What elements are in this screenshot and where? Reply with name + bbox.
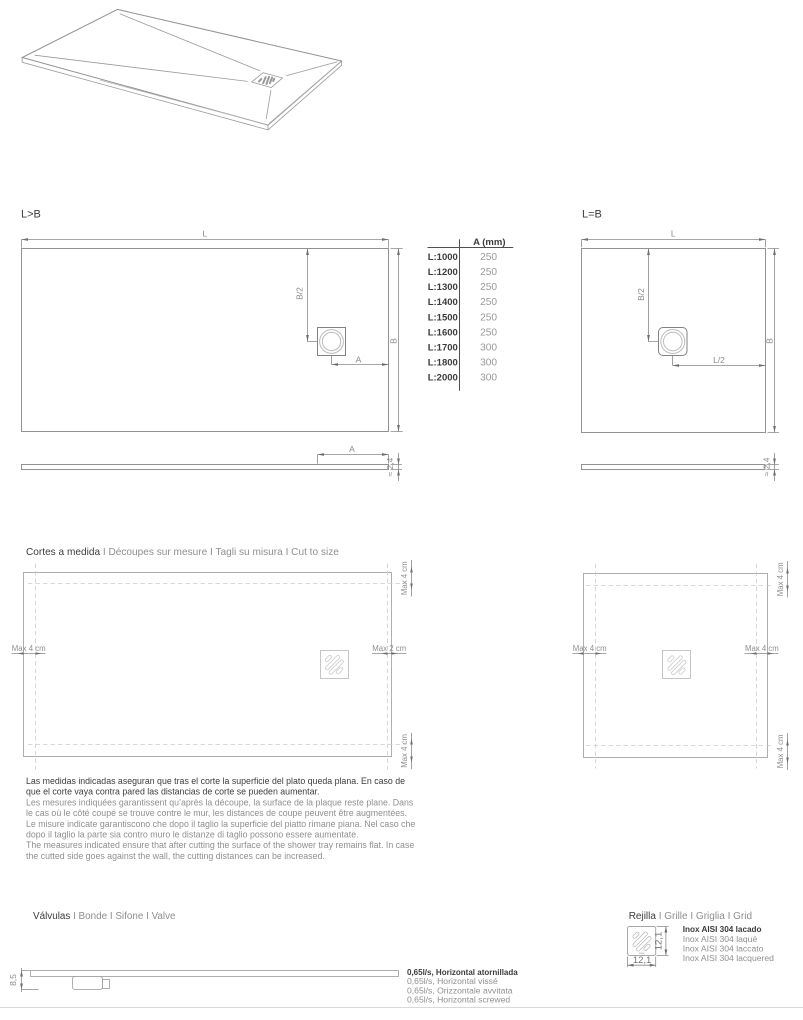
svg-text:250: 250 — [480, 327, 497, 338]
svg-text:Inox AISI 304 lacquered: Inox AISI 304 lacquered — [683, 953, 774, 963]
svg-text:B/2: B/2 — [636, 288, 646, 301]
svg-text:Cortes a medida I Découpes sur: Cortes a medida I Découpes sur mesure I … — [26, 547, 339, 558]
svg-text:the cutted side goes against t: the cutted side goes against the wall, t… — [26, 851, 325, 861]
svg-text:A (mm): A (mm) — [473, 237, 505, 248]
svg-text:L: L — [202, 229, 207, 239]
svg-text:Max 4 cm: Max 4 cm — [400, 561, 409, 595]
svg-text:B: B — [388, 338, 398, 344]
svg-text:dopo il taglio la parte sia co: dopo il taglio la parte sia contro muro … — [26, 830, 359, 840]
svg-text:250: 250 — [480, 297, 497, 308]
svg-text:L:1200: L:1200 — [428, 267, 458, 278]
svg-text:Les mesures indiquées garantis: Les mesures indiquées garantissent qu’ap… — [26, 797, 414, 807]
svg-text:que el corte vaya contra pared: que el corte vaya contra pared las dista… — [26, 787, 319, 797]
svg-text:L:2000: L:2000 — [428, 373, 458, 384]
svg-text:Max 4 cm: Max 4 cm — [573, 644, 607, 653]
svg-text:L/2: L/2 — [713, 355, 725, 365]
svg-text:Válvulas I Bonde I Sifone I Va: Válvulas I Bonde I Sifone I Valve — [33, 911, 176, 922]
svg-text:300: 300 — [480, 358, 497, 369]
svg-text:Max 4 cm: Max 4 cm — [400, 734, 409, 768]
svg-text:A: A — [356, 354, 362, 364]
svg-text:≈ 2,4: ≈ 2,4 — [761, 457, 771, 476]
svg-text:12,1: 12,1 — [633, 955, 652, 966]
svg-text:L:1700: L:1700 — [428, 342, 458, 353]
svg-text:250: 250 — [480, 252, 497, 263]
svg-text:L>B: L>B — [21, 209, 41, 221]
svg-text:Rejilla I Grille I Griglia I G: Rejilla I Grille I Griglia I Grid — [629, 911, 752, 922]
svg-text:300: 300 — [480, 342, 497, 353]
svg-text:B/2: B/2 — [295, 287, 305, 300]
svg-text:Max 4 cm: Max 4 cm — [776, 735, 785, 769]
svg-text:L:1300: L:1300 — [428, 282, 458, 293]
svg-text:250: 250 — [480, 267, 497, 278]
svg-text:Max 4 cm: Max 4 cm — [12, 644, 46, 653]
svg-text:L: L — [671, 229, 676, 239]
svg-text:≈ 2,4: ≈ 2,4 — [385, 458, 395, 477]
svg-text:Las medidas indicadas aseguran: Las medidas indicadas aseguran que tras … — [26, 776, 405, 786]
svg-text:Max 2 cm: Max 2 cm — [372, 644, 406, 653]
svg-text:L:1600: L:1600 — [428, 327, 458, 338]
svg-text:250: 250 — [480, 312, 497, 323]
svg-text:L:1500: L:1500 — [428, 312, 458, 323]
svg-text:The measures indicated ensure: The measures indicated ensure that after… — [26, 840, 414, 850]
svg-text:Le misure indicate garantiscon: Le misure indicate garantiscono che dopo… — [26, 819, 415, 829]
svg-text:Max 4 cm: Max 4 cm — [776, 562, 785, 596]
svg-text:8,5: 8,5 — [8, 974, 18, 986]
svg-text:300: 300 — [480, 373, 497, 384]
svg-text:B: B — [765, 338, 775, 344]
svg-text:0,65l/s, Horizontal screwed: 0,65l/s, Horizontal screwed — [407, 995, 510, 1005]
svg-text:Inox AISI 304 laqué: Inox AISI 304 laqué — [683, 934, 758, 944]
svg-text:L:1000: L:1000 — [428, 252, 458, 263]
svg-text:le cas où le côté coupé se tro: le cas où le côté coupé se trouve contre… — [26, 808, 407, 818]
svg-text:Max 4 cm: Max 4 cm — [745, 644, 779, 653]
svg-text:L:1400: L:1400 — [428, 297, 458, 308]
svg-text:A: A — [349, 444, 355, 454]
svg-text:12,1: 12,1 — [654, 932, 665, 951]
svg-text:L=B: L=B — [582, 209, 602, 221]
svg-text:250: 250 — [480, 282, 497, 293]
svg-text:Inox AISI 304 laccato: Inox AISI 304 laccato — [683, 943, 764, 953]
svg-text:L:1800: L:1800 — [428, 358, 458, 369]
